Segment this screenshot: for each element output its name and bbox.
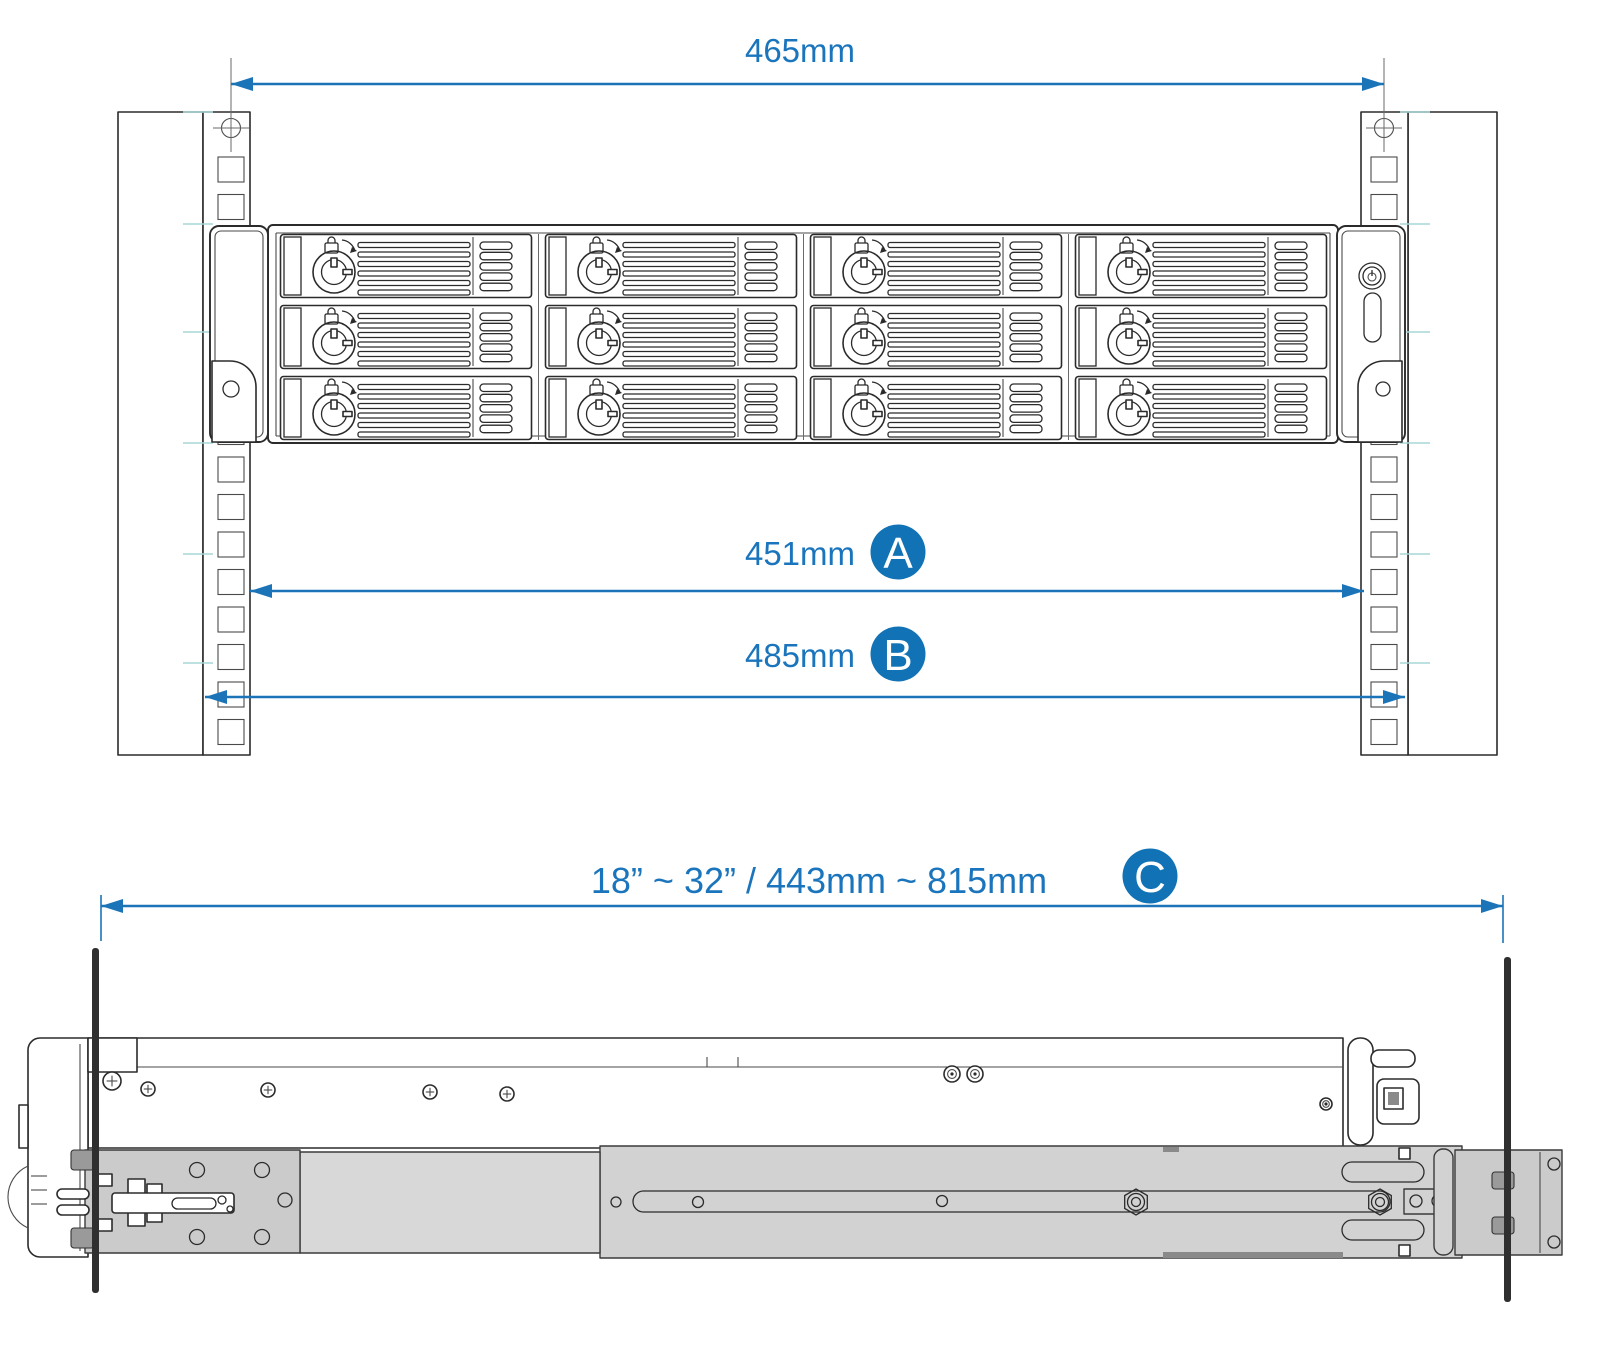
rear-latch bbox=[1348, 1038, 1419, 1145]
rail-assembly bbox=[57, 1146, 1562, 1258]
rack-post-rear bbox=[1504, 957, 1511, 1302]
left-mounting-ear bbox=[210, 226, 268, 442]
badge-b: B bbox=[871, 627, 926, 682]
drive-tray bbox=[1076, 306, 1327, 369]
side-view-figure: 18” ~ 32” / 443mm ~ 815mm C bbox=[8, 849, 1562, 1303]
badge-letter: B bbox=[883, 631, 912, 680]
dimension-rail-depth: 18” ~ 32” / 443mm ~ 815mm C bbox=[101, 849, 1503, 944]
ring-screw-icon bbox=[944, 1066, 960, 1082]
rack-post-right-flange bbox=[1408, 112, 1497, 755]
bezel-lip bbox=[8, 1166, 28, 1228]
rack-post-front bbox=[92, 948, 99, 1293]
ear-screw-tab bbox=[212, 361, 256, 442]
rail-shadow-strip bbox=[1163, 1252, 1343, 1258]
latch-prong bbox=[57, 1189, 89, 1199]
dimension-chassis-width: 451mm A bbox=[250, 525, 1364, 592]
end-notch bbox=[1399, 1245, 1410, 1256]
badge-letter: A bbox=[883, 529, 913, 578]
right-mounting-ear bbox=[1337, 226, 1405, 442]
front-view-figure: 465mm 451mm A 485mm B bbox=[118, 32, 1497, 755]
mid-rail bbox=[300, 1152, 600, 1253]
dimension-hole-span: 465mm bbox=[231, 32, 1384, 84]
drive-tray bbox=[281, 377, 532, 440]
bezel-tab bbox=[19, 1105, 28, 1148]
screw-icon bbox=[261, 1083, 275, 1097]
dimension-label: 451mm bbox=[745, 535, 855, 572]
drive-tray bbox=[1076, 377, 1327, 440]
dimension-label: 465mm bbox=[745, 32, 855, 69]
ring-screw-icon bbox=[1320, 1098, 1332, 1110]
screw-icon bbox=[423, 1085, 437, 1099]
drive-tray bbox=[1076, 235, 1327, 298]
latch-prong bbox=[57, 1205, 89, 1215]
drive-tray bbox=[546, 235, 797, 298]
latch-handle bbox=[1348, 1038, 1373, 1145]
badge-letter: C bbox=[1134, 853, 1166, 902]
badge-a: A bbox=[871, 525, 926, 580]
badge-c: C bbox=[1123, 849, 1178, 904]
nas-front bbox=[210, 225, 1405, 443]
dimension-label: 485mm bbox=[745, 637, 855, 674]
end-notch bbox=[1399, 1148, 1410, 1159]
outer-rail bbox=[600, 1146, 1462, 1258]
drive-tray bbox=[811, 306, 1062, 369]
power-button-icon bbox=[1359, 263, 1385, 289]
drive-tray bbox=[281, 306, 532, 369]
drive-tray bbox=[811, 377, 1062, 440]
drive-tray bbox=[811, 235, 1062, 298]
drive-tray bbox=[546, 306, 797, 369]
mount-nub bbox=[71, 1150, 94, 1170]
rail-shadow-strip bbox=[1163, 1147, 1179, 1152]
bezel-outline bbox=[28, 1038, 88, 1257]
screw-icon bbox=[141, 1082, 155, 1096]
ring-screw-icon bbox=[967, 1066, 983, 1082]
rail-end-cap bbox=[1434, 1149, 1453, 1255]
drive-tray bbox=[281, 235, 532, 298]
dimension-overall-width: 485mm B bbox=[205, 627, 1405, 698]
screw-icon bbox=[103, 1072, 121, 1090]
latch-button bbox=[1388, 1092, 1399, 1105]
latch-pin bbox=[1371, 1050, 1415, 1067]
chassis-side-panel bbox=[88, 1038, 1343, 1148]
rack-post-left-flange bbox=[118, 112, 203, 755]
diagram-page: 465mm 451mm A 485mm B bbox=[0, 0, 1600, 1362]
screw-icon bbox=[500, 1087, 514, 1101]
drive-tray bbox=[546, 377, 797, 440]
ear-screw-tab bbox=[1358, 361, 1402, 442]
dimension-label: 18” ~ 32” / 443mm ~ 815mm bbox=[591, 860, 1047, 901]
mount-nub bbox=[71, 1228, 94, 1248]
rackmount-dimensions-diagram: 465mm 451mm A 485mm B bbox=[0, 0, 1600, 1362]
